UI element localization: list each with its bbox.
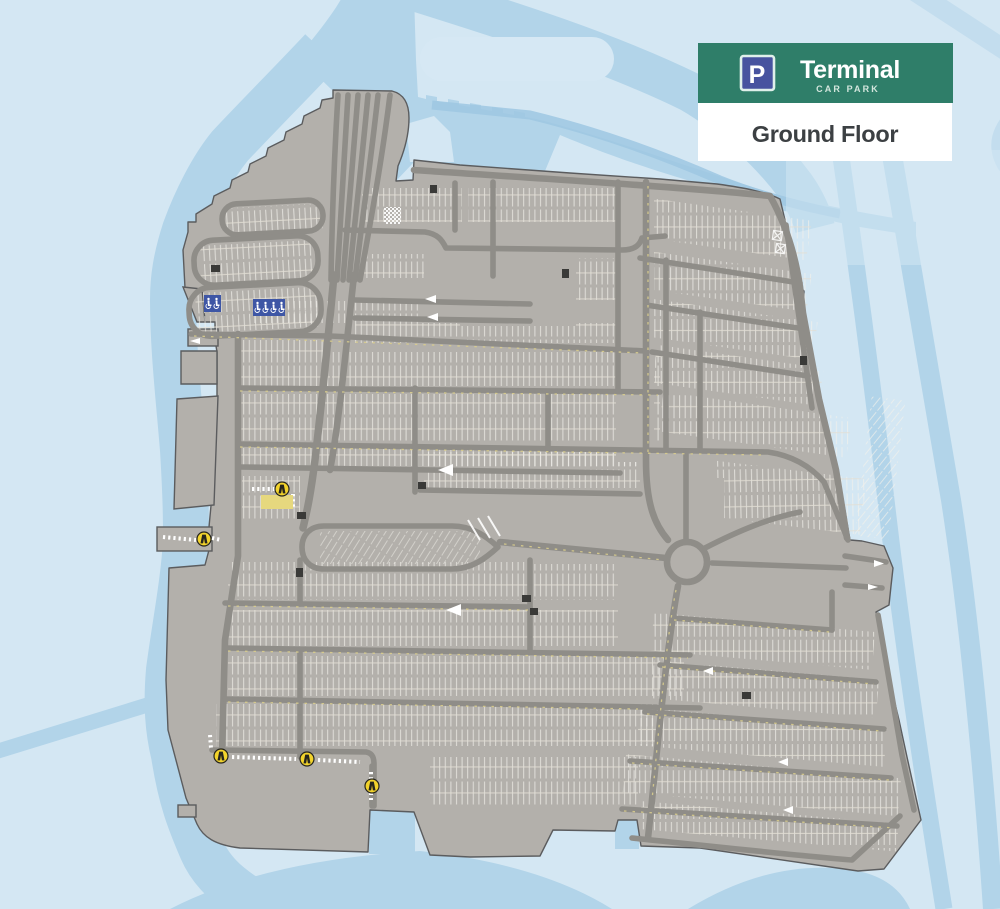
svg-text:CAR PARK: CAR PARK — [816, 84, 880, 94]
svg-text:P: P — [749, 61, 766, 89]
svg-text:Terminal: Terminal — [800, 56, 900, 84]
svg-text:Ground Floor: Ground Floor — [752, 121, 899, 147]
